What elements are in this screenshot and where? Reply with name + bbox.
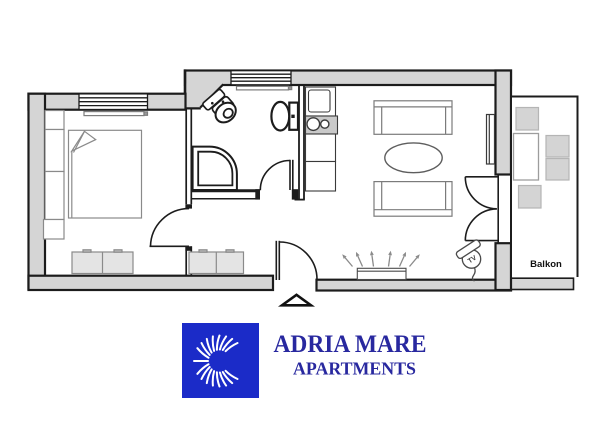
svg-text:Balkon: Balkon	[530, 259, 562, 270]
svg-text:ADRIA MARE: ADRIA MARE	[274, 331, 427, 358]
svg-text:APARTMENTS: APARTMENTS	[293, 359, 416, 379]
